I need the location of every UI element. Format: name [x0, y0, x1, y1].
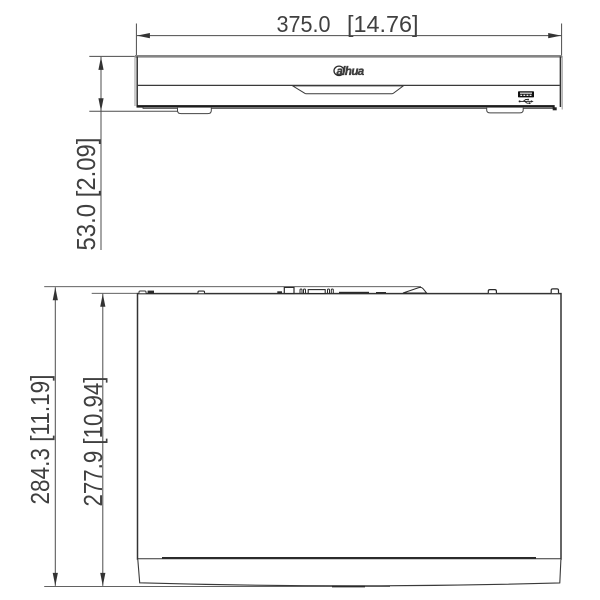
svg-text:[14.76]: [14.76]	[347, 11, 419, 37]
svg-text:284.3 [11.19]: 284.3 [11.19]	[25, 375, 55, 505]
svg-text:alhua: alhua	[337, 66, 365, 78]
svg-text:53.0 [2.09]: 53.0 [2.09]	[71, 138, 101, 251]
svg-text:277.9 [10.94]: 277.9 [10.94]	[78, 377, 108, 507]
svg-text:375.0: 375.0	[277, 11, 331, 37]
